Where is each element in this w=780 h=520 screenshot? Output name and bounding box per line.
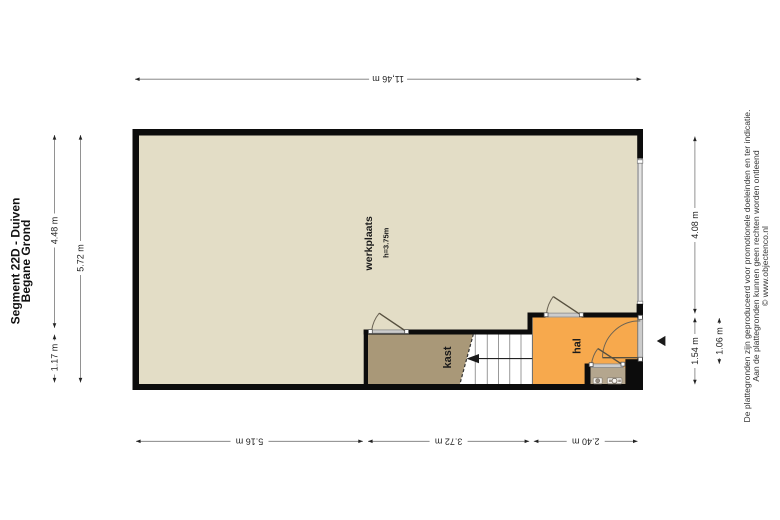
svg-text:1.54 m: 1.54 m	[690, 337, 700, 365]
svg-text:3.72 m: 3.72 m	[435, 436, 463, 446]
svg-text:1.17 m: 1.17 m	[50, 344, 60, 372]
svg-text:© www.objectenco.nl: © www.objectenco.nl	[760, 226, 770, 306]
svg-text:kast: kast	[442, 346, 454, 368]
svg-text:Begane Grond: Begane Grond	[19, 220, 33, 303]
svg-text:11,46 m: 11,46 m	[372, 74, 404, 84]
svg-text:h=3.75m: h=3.75m	[382, 227, 391, 258]
svg-text:5.72 m: 5.72 m	[76, 244, 86, 272]
svg-text:4.08 m: 4.08 m	[690, 211, 700, 239]
svg-text:2.40 m: 2.40 m	[572, 436, 600, 446]
svg-text:5.16 m: 5.16 m	[236, 436, 264, 446]
svg-text:hal: hal	[572, 338, 584, 354]
svg-text:4.48 m: 4.48 m	[50, 217, 60, 245]
svg-text:1.06 m: 1.06 m	[714, 327, 724, 355]
svg-text:werkplaats: werkplaats	[363, 216, 375, 271]
